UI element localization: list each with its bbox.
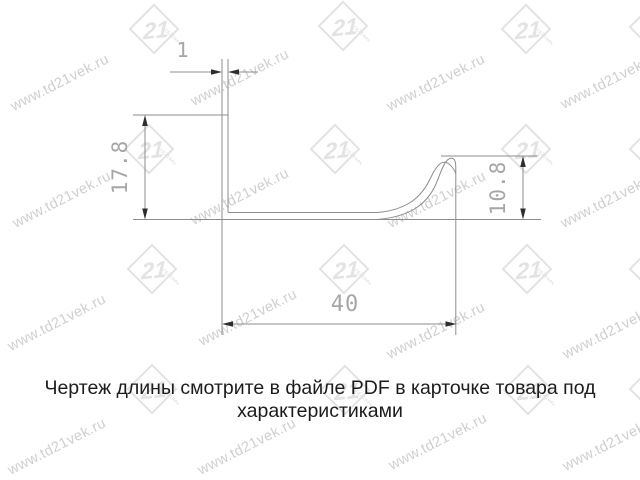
dim-label-thickness: 1: [176, 38, 189, 62]
dim-height-left-bottom-arrow-icon: [142, 209, 148, 220]
profile-curve-inner-line: [377, 162, 456, 212]
product-drawing-page: www.td21vek.ruwww.td21vek.ruwww.td21vek.…: [0, 0, 640, 480]
caption: Чертеж длины смотрите в файле PDF в карт…: [0, 377, 640, 422]
dim-width-right-arrow-icon: [446, 321, 457, 326]
caption-line-2: характеристиками: [0, 400, 640, 423]
dim-height-right-bottom-arrow-icon: [520, 209, 526, 220]
dim-height-right-top-arrow-icon: [520, 156, 526, 167]
dimension-height-left: 17.8: [108, 115, 228, 220]
caption-line-1: Чертеж длины смотрите в файле PDF в карт…: [0, 377, 640, 400]
dim-height-left-top-arrow-icon: [142, 115, 148, 126]
dim-label-height-left: 17.8: [108, 140, 132, 195]
dim-label-width-bottom: 40: [331, 292, 360, 317]
dim-width-left-arrow-icon: [222, 321, 233, 326]
dimension-width-bottom: 40: [222, 170, 457, 335]
dim-thickness-left-arrow-icon: [211, 69, 222, 74]
dim-thickness-right-arrow-icon: [228, 69, 239, 74]
dimension-thickness: 1: [170, 38, 258, 75]
dim-label-height-right: 10.8: [486, 161, 510, 216]
